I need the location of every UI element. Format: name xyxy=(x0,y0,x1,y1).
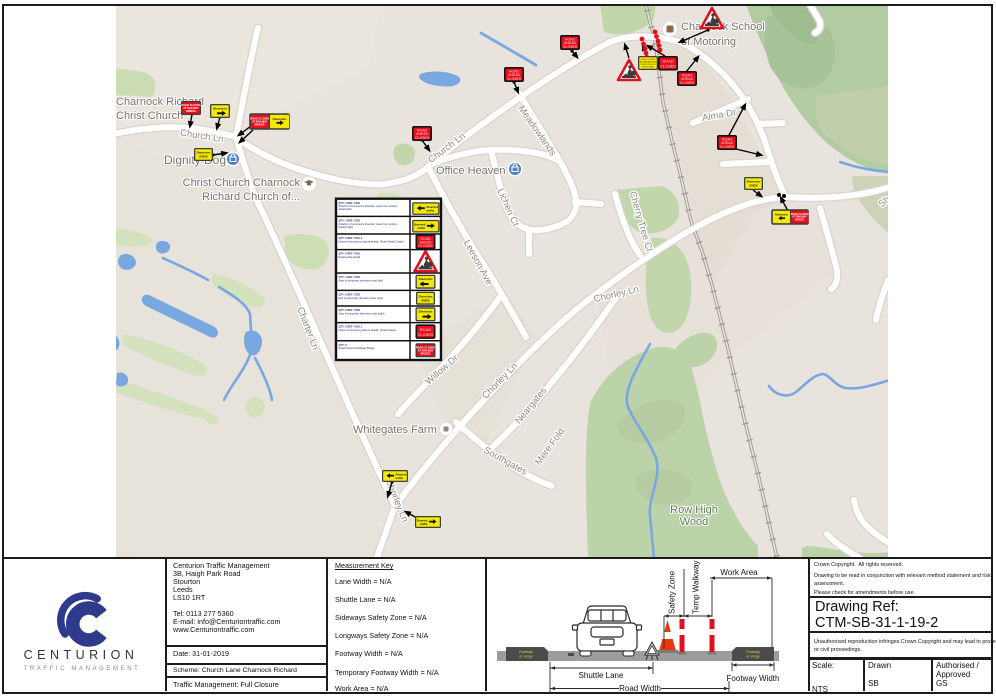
svg-text:QTY: 2 REF: 7001: QTY: 2 REF: 7001 xyxy=(339,252,361,256)
svg-text:QTY: 1 REF: 2702: QTY: 1 REF: 2702 xyxy=(339,219,361,223)
svg-text:Notice of temporary closure ah: Notice of temporary closure ahead - Road… xyxy=(339,328,397,332)
svg-text:QTY: 2: QTY: 2 xyxy=(339,343,348,347)
svg-text:Christ Church: Christ Church xyxy=(116,110,183,122)
svg-text:or Verge: or Verge xyxy=(519,655,533,659)
svg-text:Start of temporary diversion r: Start of temporary diversion route (left… xyxy=(339,279,384,283)
svg-text:Richard Church of...: Richard Church of... xyxy=(202,191,300,203)
svg-text:QTY: 5 REF: 7010.1: QTY: 5 REF: 7010.1 xyxy=(339,236,363,240)
svg-text:Notice of temporary closure ah: Notice of temporary closure ahead - Road… xyxy=(339,240,405,244)
svg-text:Road Width: Road Width xyxy=(619,684,661,693)
svg-text:Footway Width: Footway Width xyxy=(727,674,780,683)
svg-text:BRIDGE: BRIDGE xyxy=(795,218,805,221)
svg-text:QTY: 1 REF: 2702: QTY: 1 REF: 2702 xyxy=(339,275,361,279)
svg-text:Footway: Footway xyxy=(519,650,533,654)
svg-text:Road Closed At Railway Bridge: Road Closed At Railway Bridge xyxy=(339,346,376,350)
svg-text:Shuttle Lane: Shuttle Lane xyxy=(579,671,624,680)
svg-text:End of temporary diversion rou: End of temporary diversion route (end) xyxy=(339,296,384,300)
svg-text:TRAFFIC MANAGEMENT: TRAFFIC MANAGEMENT xyxy=(24,666,141,672)
svg-text:Start of temporary diversion r: Start of temporary diversion route (righ… xyxy=(339,312,385,316)
svg-text:ahead (right): ahead (right) xyxy=(339,225,354,229)
svg-text:Row High: Row High xyxy=(670,504,718,516)
svg-text:QTY: 2 REF: 7010.1: QTY: 2 REF: 7010.1 xyxy=(339,325,363,329)
svg-text:BRIDGE: BRIDGE xyxy=(255,122,265,126)
svg-text:Temp Walkway: Temp Walkway xyxy=(692,561,701,615)
svg-text:QTY: 2 REF: 2702: QTY: 2 REF: 2702 xyxy=(339,308,361,312)
svg-text:QTY: 2 REF: 2702: QTY: 2 REF: 2702 xyxy=(339,293,361,297)
svg-text:Wood: Wood xyxy=(680,516,709,528)
svg-text:CENTURION: CENTURION xyxy=(24,648,139,662)
svg-text:Whitegates Farm: Whitegates Farm xyxy=(353,424,437,436)
svg-text:Work Area: Work Area xyxy=(720,568,758,577)
svg-text:Safety Zone: Safety Zone xyxy=(668,570,677,614)
svg-text:or Verge: or Verge xyxy=(746,655,760,659)
svg-text:Footway: Footway xyxy=(746,650,760,654)
svg-text:ahead (left): ahead (left) xyxy=(339,207,352,211)
svg-text:Christ Church Charnock: Christ Church Charnock xyxy=(183,177,301,189)
svg-text:Road works ahead: Road works ahead xyxy=(339,255,361,259)
svg-text:Diversion: Diversion xyxy=(273,117,287,121)
svg-text:Office Heaven: Office Heaven xyxy=(436,165,506,177)
svg-text:Diversion: Diversion xyxy=(775,212,788,216)
svg-text:QTY: 1 REF: 2702: QTY: 1 REF: 2702 xyxy=(339,201,361,205)
